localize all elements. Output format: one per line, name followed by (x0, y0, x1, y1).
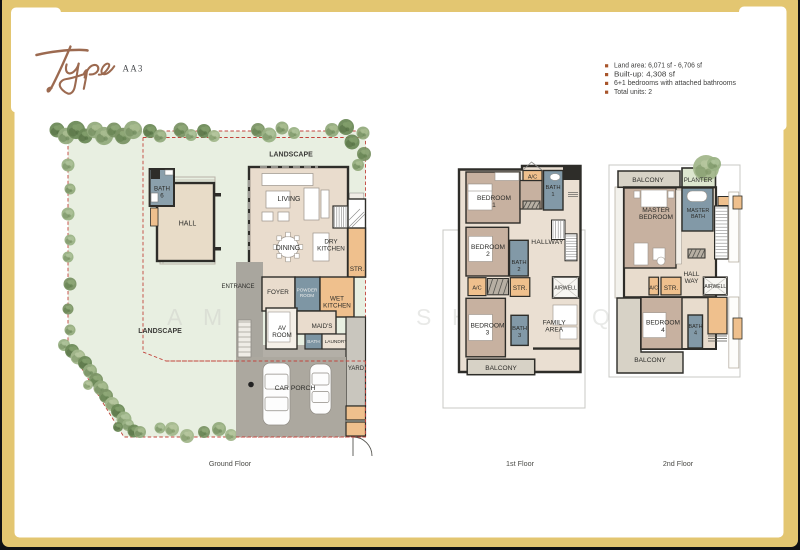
svg-text:1: 1 (551, 192, 554, 198)
svg-text:4: 4 (694, 331, 697, 337)
svg-text:BATH: BATH (511, 260, 526, 266)
svg-text:AREA: AREA (545, 327, 564, 334)
svg-text:4: 4 (661, 327, 665, 334)
svg-text:LANDSCAPE: LANDSCAPE (269, 152, 313, 159)
svg-text:CAR PORCH: CAR PORCH (275, 385, 316, 392)
svg-text:BATH: BATH (154, 186, 170, 193)
svg-text:1st Floor: 1st Floor (506, 459, 535, 468)
svg-text:HALL: HALL (179, 221, 197, 228)
svg-text:AV: AV (278, 325, 287, 332)
svg-text:BEDROOM: BEDROOM (639, 214, 673, 221)
svg-text:BEDROOM: BEDROOM (471, 244, 505, 251)
svg-text:ENTRANCE: ENTRANCE (221, 284, 254, 290)
svg-text:BEDROOM: BEDROOM (477, 195, 511, 202)
svg-text:BATH: BATH (512, 326, 527, 332)
svg-text:WAY: WAY (685, 278, 700, 285)
svg-text:2: 2 (517, 267, 520, 273)
svg-text:6: 6 (160, 193, 164, 200)
svg-text:YARD: YARD (348, 366, 365, 372)
svg-text:LIVING: LIVING (278, 196, 301, 203)
svg-text:S: S (416, 304, 431, 330)
svg-text:STR.: STR. (513, 285, 528, 292)
svg-text:POWDER: POWDER (297, 288, 318, 293)
svg-text:MAID'S: MAID'S (312, 323, 333, 330)
svg-text:MASTER: MASTER (642, 207, 670, 214)
svg-text:3: 3 (518, 333, 521, 339)
svg-text:A/C: A/C (649, 286, 658, 292)
svg-text:BALCONY: BALCONY (485, 365, 517, 372)
svg-text:A/C: A/C (472, 286, 481, 292)
svg-text:KITCHEN: KITCHEN (317, 246, 345, 253)
svg-text:STR.: STR. (350, 266, 365, 273)
svg-text:BATH: BATH (691, 214, 705, 220)
svg-text:DRY: DRY (324, 239, 338, 246)
svg-text:BEDROOM: BEDROOM (470, 323, 504, 330)
svg-text:KITCHEN: KITCHEN (323, 303, 351, 310)
svg-text:AA3: AA3 (123, 64, 144, 74)
svg-text:6+1 bedrooms with attached bat: 6+1 bedrooms with attached bathrooms (614, 78, 736, 87)
svg-text:2: 2 (486, 251, 490, 258)
svg-text:AIRWELL: AIRWELL (554, 285, 577, 291)
svg-text:2nd Floor: 2nd Floor (663, 459, 694, 468)
svg-text:Q: Q (592, 304, 610, 330)
svg-text:WET: WET (330, 296, 344, 303)
svg-text:BALCONY: BALCONY (634, 357, 666, 364)
svg-text:FAMILY: FAMILY (543, 320, 567, 327)
svg-text:AIRWELL: AIRWELL (704, 284, 726, 290)
svg-text:BATH: BATH (545, 185, 560, 191)
svg-text:DINING: DINING (276, 245, 301, 252)
svg-text:3: 3 (486, 330, 490, 337)
svg-text:M: M (203, 304, 222, 330)
svg-text:A/C: A/C (528, 174, 537, 180)
svg-text:ROOM: ROOM (272, 332, 292, 339)
svg-text:BALCONY: BALCONY (632, 177, 664, 184)
svg-text:A: A (167, 304, 183, 330)
svg-text:BATH: BATH (689, 324, 703, 330)
svg-text:BATH: BATH (307, 339, 320, 345)
svg-text:BEDROOM: BEDROOM (646, 320, 680, 327)
svg-text:FOYER: FOYER (267, 289, 289, 296)
svg-text:LANDSCAPE: LANDSCAPE (138, 328, 182, 335)
svg-text:Land area: 6,071 sf - 6,706 sf: Land area: 6,071 sf - 6,706 sf (614, 61, 702, 70)
svg-text:Built-up: 4,308 sf: Built-up: 4,308 sf (614, 69, 675, 78)
svg-text:STR.: STR. (664, 285, 679, 292)
svg-text:HALLWAY: HALLWAY (531, 239, 564, 246)
svg-text:Ground Floor: Ground Floor (209, 459, 252, 468)
svg-text:HALL: HALL (684, 271, 700, 278)
svg-text:Total units: 2: Total units: 2 (614, 87, 652, 96)
svg-text:LAUNDRY: LAUNDRY (325, 339, 349, 345)
svg-text:1: 1 (492, 202, 496, 209)
svg-text:ROOM: ROOM (300, 293, 314, 298)
svg-text:PLANTER: PLANTER (684, 177, 713, 184)
